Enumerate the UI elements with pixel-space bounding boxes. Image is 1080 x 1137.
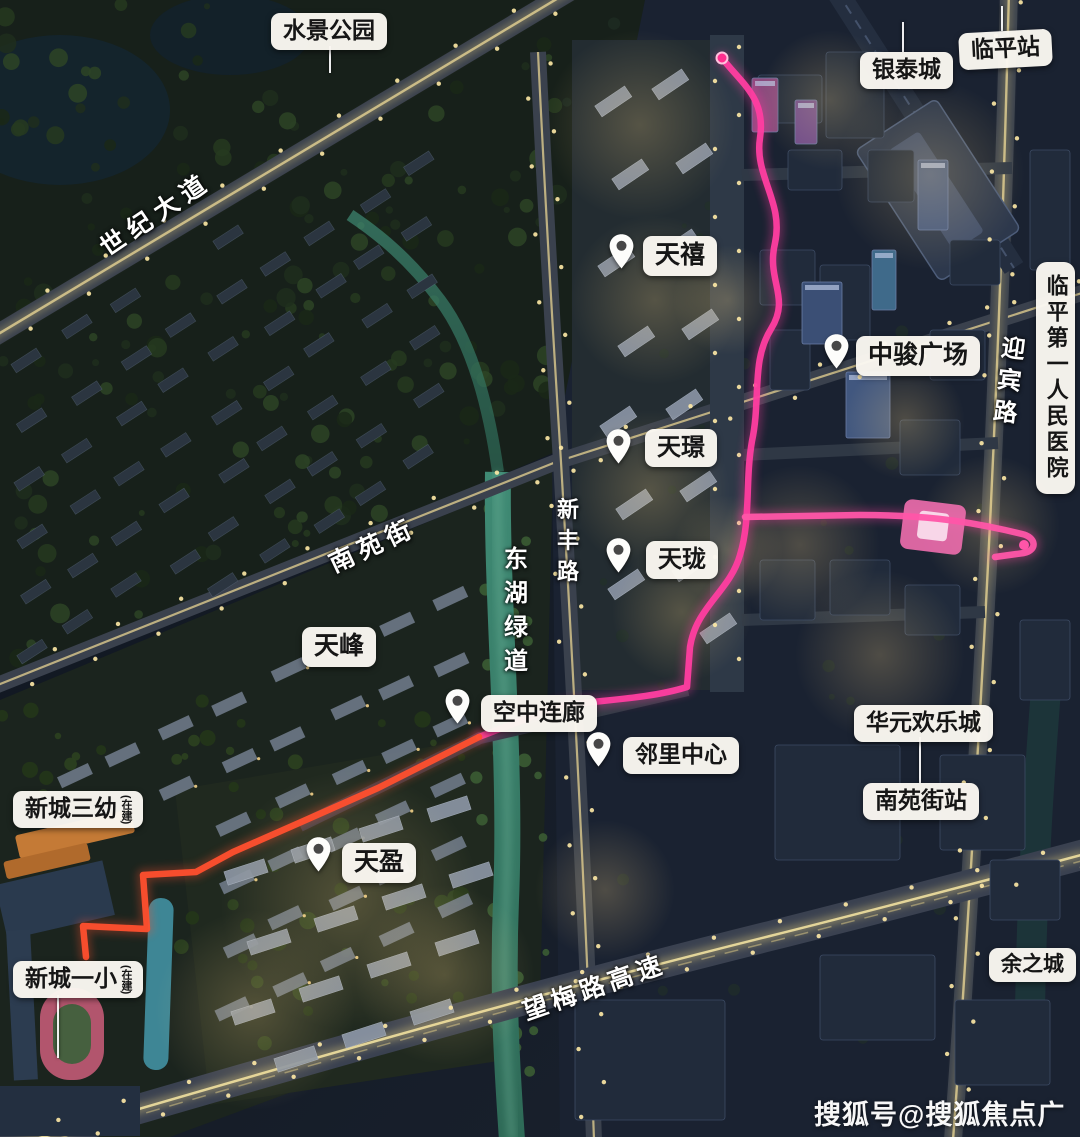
place-label-tianfeng-text: 天峰 bbox=[314, 630, 364, 663]
road-label-shiji-avenue: 世纪大道 bbox=[92, 162, 218, 263]
road-label-donghu-greenway: 东湖绿道 bbox=[496, 546, 531, 682]
place-label-xincheng-no3-kindergarten-text: 新城三幼 bbox=[25, 794, 117, 824]
sohu-watermark: 搜狐号@搜狐焦点广安站 bbox=[814, 1093, 1080, 1137]
pin-label-zhongjun-plaza: 中骏广场 bbox=[856, 336, 980, 376]
map-pin-sky-corridor bbox=[444, 688, 471, 725]
pin-label-tianlong: 天珑 bbox=[646, 541, 718, 579]
place-label-yuzhicheng-text: 余之城 bbox=[1001, 951, 1064, 978]
leader-line bbox=[329, 46, 331, 73]
pin-label-sky-corridor: 空中连廊 bbox=[481, 695, 597, 732]
map-pin-tianjing bbox=[605, 428, 632, 465]
pin-label-tianlong-text: 天珑 bbox=[658, 544, 706, 575]
place-label-xincheng-no3-kindergarten: 新城三幼(在建) bbox=[13, 791, 143, 828]
under-construction-tag: (在建) bbox=[120, 795, 131, 824]
under-construction-tag: (在建) bbox=[120, 965, 131, 994]
pin-label-sky-corridor-text: 空中连廊 bbox=[493, 698, 585, 728]
place-label-yuzhicheng: 余之城 bbox=[989, 948, 1076, 982]
night-aerial-masterplan-map: 水景公园银泰城临平站天峰华元欢乐城南苑街站余之城新城三幼(在建)新城一小(在建)… bbox=[0, 0, 1080, 1137]
pin-label-zhongjun-plaza-text: 中骏广场 bbox=[868, 339, 968, 372]
place-label-shuijing-park: 水景公园 bbox=[271, 13, 387, 50]
place-label-tianfeng: 天峰 bbox=[302, 627, 376, 667]
place-label-yintai-city: 银泰城 bbox=[860, 52, 953, 89]
place-label-huayuan-joy-city-text: 华元欢乐城 bbox=[866, 708, 981, 738]
place-label-xincheng-no1-primary-text: 新城一小 bbox=[25, 964, 117, 994]
place-label-huayuan-joy-city: 华元欢乐城 bbox=[854, 705, 993, 742]
place-label-linping-station: 临平站 bbox=[958, 29, 1053, 71]
place-label-linping-first-peoples-hospital: 临平第一人民医院 bbox=[1036, 262, 1075, 494]
place-label-nanyuan-street-station-text: 南苑街站 bbox=[875, 786, 967, 816]
pin-label-neighborhood-center: 邻里中心 bbox=[623, 737, 739, 774]
leader-line bbox=[1001, 6, 1003, 31]
road-label-wangmei-expressway: 望梅路高速 bbox=[517, 945, 671, 1028]
map-pin-tianxi bbox=[608, 233, 635, 270]
place-label-linping-first-peoples-hospital-text: 临平第一人民医院 bbox=[1041, 274, 1070, 482]
pin-label-tianying-text: 天盈 bbox=[354, 846, 404, 879]
map-pin-tianying bbox=[305, 836, 332, 873]
pin-label-tianying: 天盈 bbox=[342, 843, 416, 883]
map-pin-zhongjun-plaza bbox=[823, 333, 850, 370]
map-labels-layer: 水景公园银泰城临平站天峰华元欢乐城南苑街站余之城新城三幼(在建)新城一小(在建)… bbox=[0, 0, 1080, 1137]
map-pin-neighborhood-center bbox=[585, 731, 612, 768]
place-label-linping-station-text: 临平站 bbox=[970, 32, 1040, 65]
place-label-nanyuan-street-station: 南苑街站 bbox=[863, 783, 979, 820]
road-label-nanyuan-street: 南苑街 bbox=[322, 508, 422, 580]
pin-label-tianxi: 天禧 bbox=[643, 236, 717, 276]
map-pin-tianlong bbox=[605, 537, 632, 574]
leader-line bbox=[57, 995, 59, 1058]
place-label-shuijing-park-text: 水景公园 bbox=[283, 16, 375, 46]
pin-label-tianjing-text: 天璟 bbox=[657, 432, 705, 463]
pin-label-neighborhood-center-text: 邻里中心 bbox=[635, 740, 727, 770]
pin-label-tianxi-text: 天禧 bbox=[655, 239, 705, 272]
place-label-xincheng-no1-primary: 新城一小(在建) bbox=[13, 961, 143, 998]
leader-line bbox=[919, 737, 921, 783]
pin-label-tianjing: 天璟 bbox=[645, 429, 717, 467]
place-label-yintai-city-text: 银泰城 bbox=[872, 55, 941, 85]
road-label-yingbin-road: 迎宾路 bbox=[983, 333, 1029, 433]
leader-line bbox=[902, 22, 904, 52]
road-label-xinfeng-road: 新丰路 bbox=[550, 498, 582, 591]
